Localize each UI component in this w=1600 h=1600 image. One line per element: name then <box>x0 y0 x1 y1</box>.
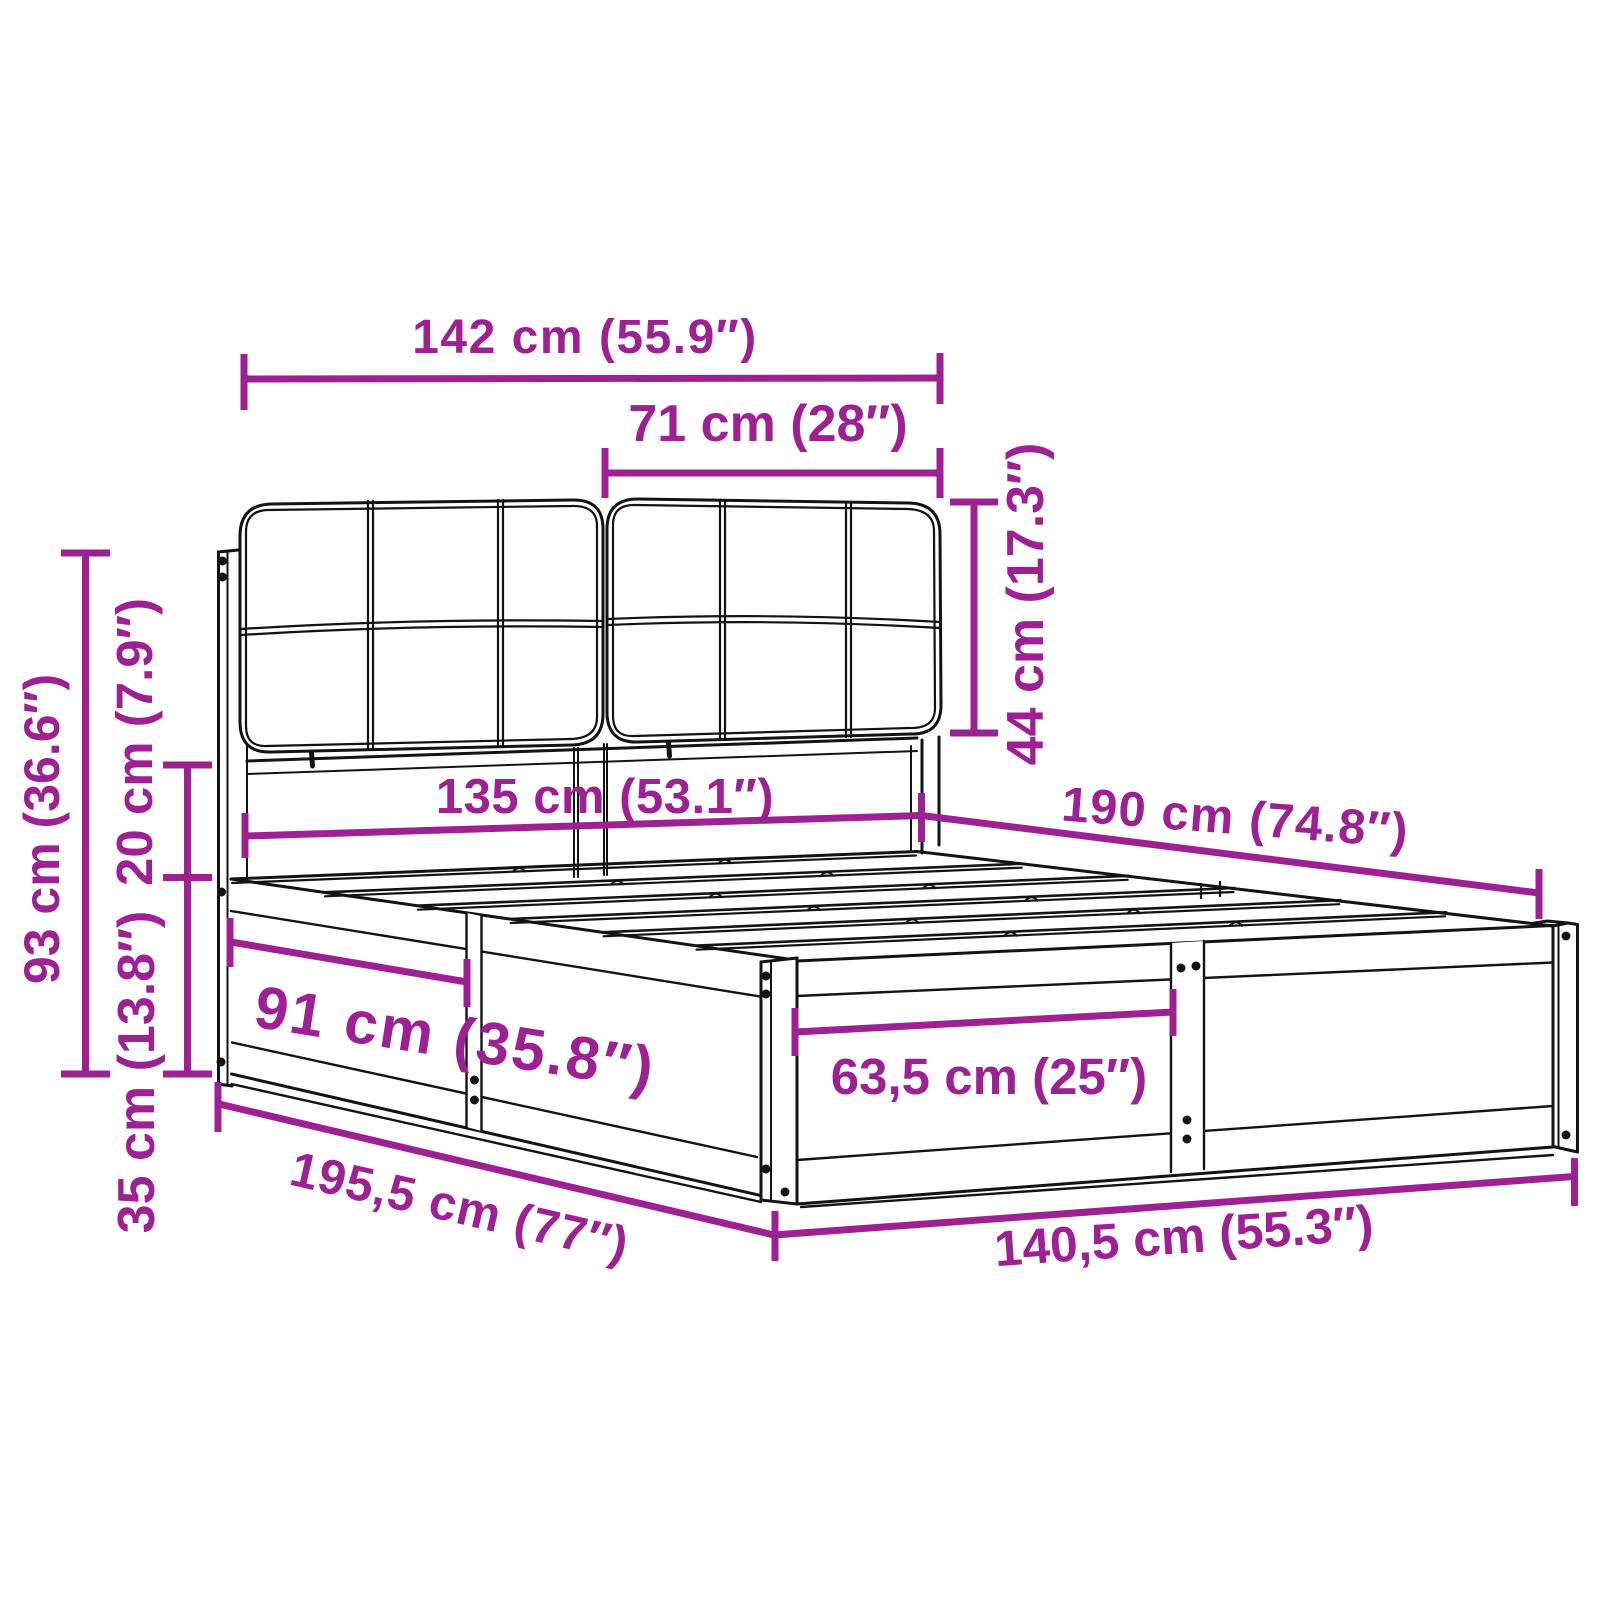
svg-text:93 cm (36.6″): 93 cm (36.6″) <box>14 674 70 984</box>
svg-text:63,5 cm (25″): 63,5 cm (25″) <box>831 1048 1147 1105</box>
svg-text:142 cm (55.9″): 142 cm (55.9″) <box>412 311 758 364</box>
svg-text:71 cm (28″): 71 cm (28″) <box>628 395 907 453</box>
svg-text:44 cm (17.3″): 44 cm (17.3″) <box>997 443 1055 766</box>
svg-text:20 cm (7.9″): 20 cm (7.9″) <box>106 598 163 886</box>
svg-text:35 cm (13.8″): 35 cm (13.8″) <box>108 911 166 1234</box>
svg-text:135 cm (53.1″): 135 cm (53.1″) <box>436 770 774 824</box>
